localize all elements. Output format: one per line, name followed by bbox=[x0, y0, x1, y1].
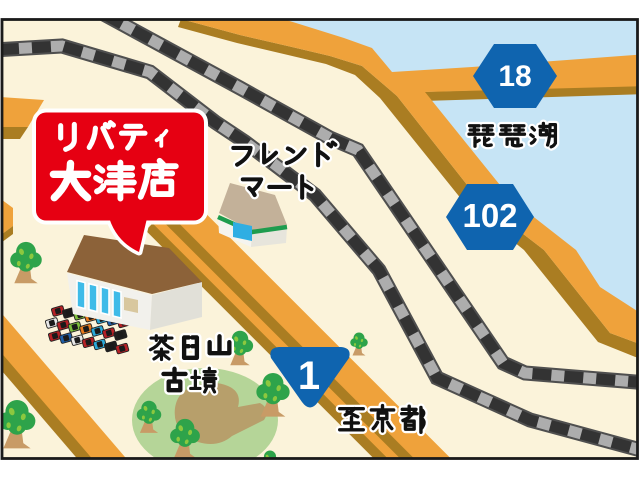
svg-text:18: 18 bbox=[498, 60, 531, 93]
svg-text:102: 102 bbox=[462, 197, 517, 234]
svg-text:1: 1 bbox=[298, 354, 320, 398]
